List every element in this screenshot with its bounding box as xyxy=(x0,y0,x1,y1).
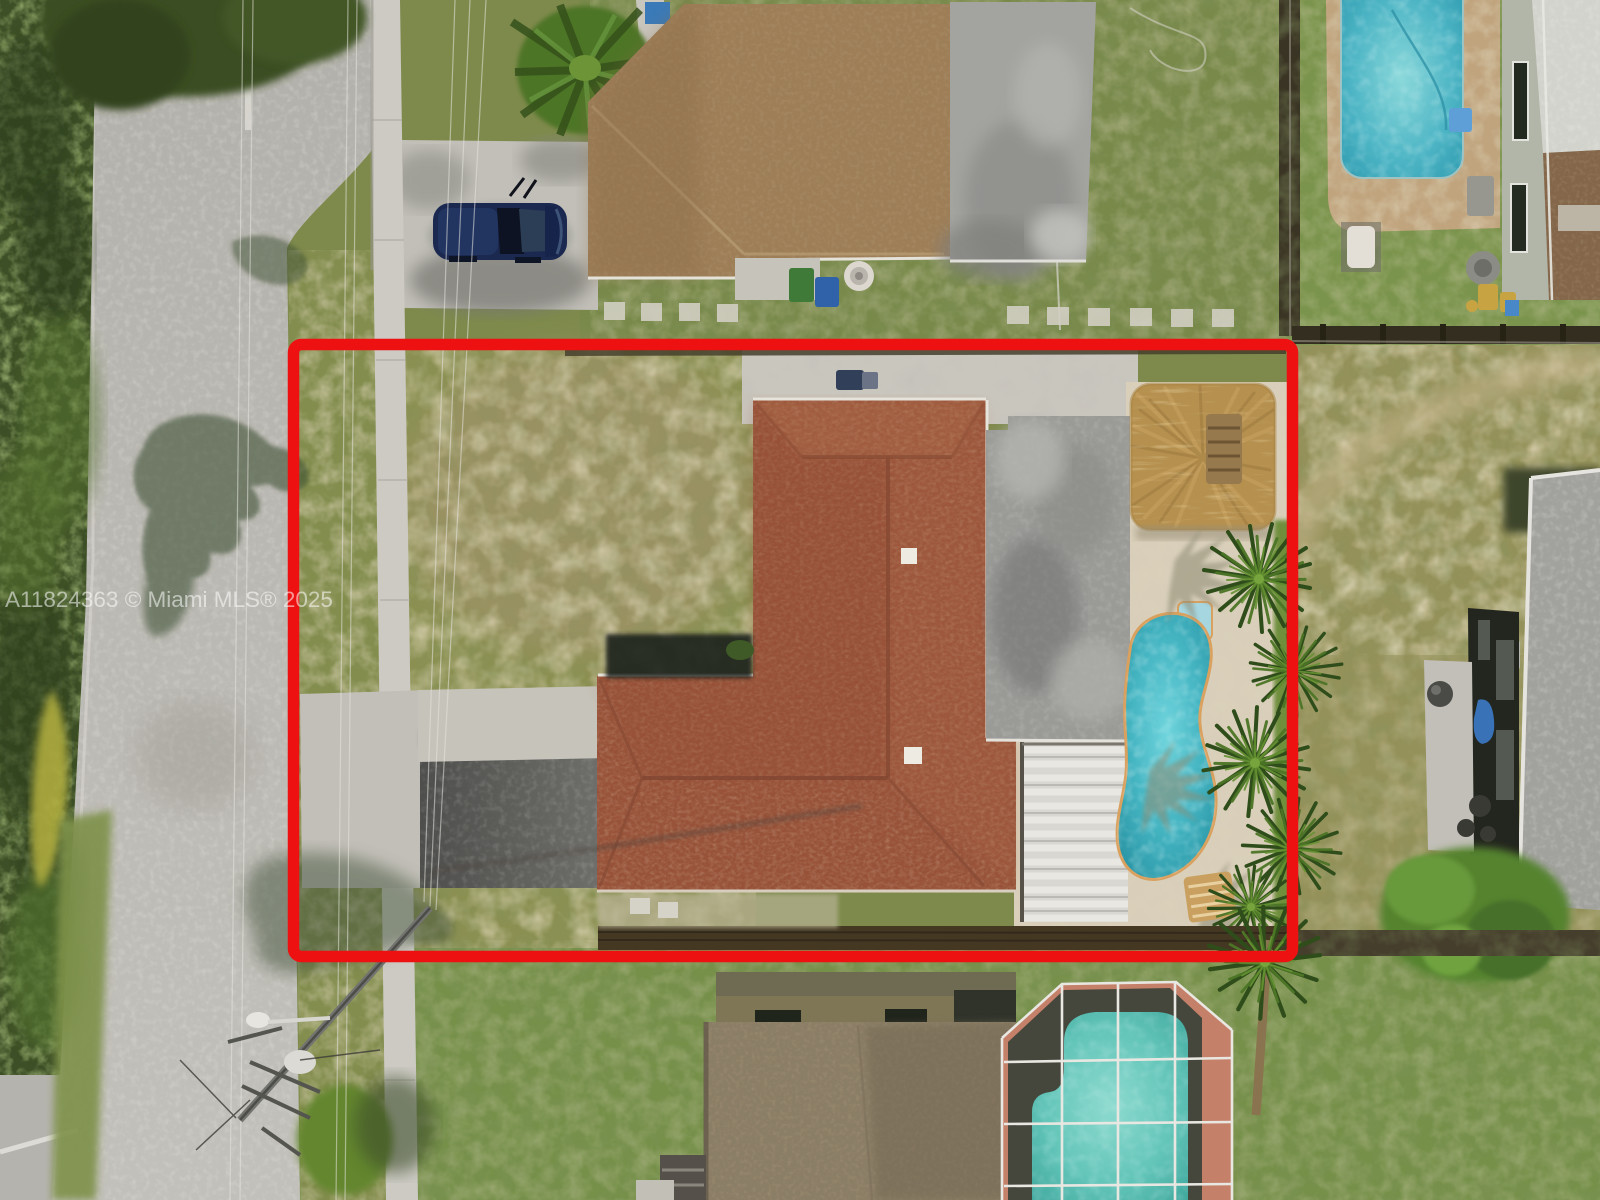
svg-text:A11824363 © Miami MLS® 2025: A11824363 © Miami MLS® 2025 xyxy=(5,587,333,612)
